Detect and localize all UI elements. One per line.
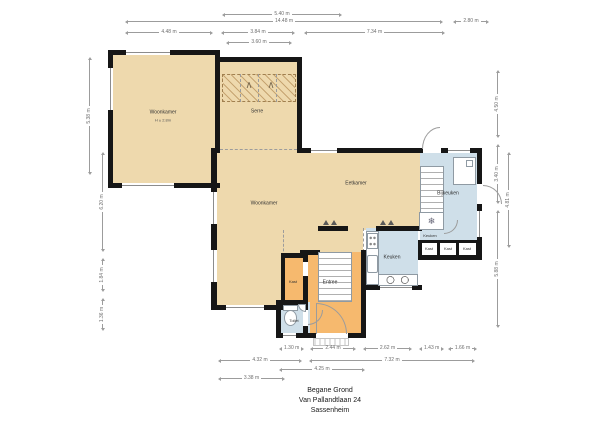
dim-bottom-4: 1.66 m: [446, 346, 479, 351]
label-serre: Serre: [251, 108, 263, 116]
plan-title-line1: Begane Grond: [230, 386, 430, 396]
label-kast-b: Kast: [444, 246, 452, 252]
wall: [318, 226, 348, 231]
label-toilet: Toilet: [289, 318, 298, 324]
wall: [437, 240, 440, 256]
dim-bottom-5: 4.32 m: [216, 358, 304, 363]
door-swing-mark: ∧: [267, 81, 274, 91]
dim-bottom-1: 2.44 m: [308, 346, 358, 351]
dim-top-5: 7.34 m: [302, 30, 447, 35]
dim-bottom-2: 2.62 m: [361, 346, 414, 351]
window: [311, 148, 337, 153]
plan-title: Begane Grond Van Pallandtlaan 24 Sassenh…: [230, 386, 430, 416]
dashed-opening-kitchen: [363, 228, 364, 252]
wall: [418, 240, 422, 256]
staircase-entree: [318, 252, 352, 302]
serre-glass-roof-hatch: [222, 74, 296, 102]
step-mark: [331, 220, 337, 225]
dim-bottom-6: 7.32 m: [307, 358, 477, 363]
dim-bottom-8: 3.38 m: [216, 376, 287, 381]
label-keuken-small: Keuken: [423, 233, 437, 239]
wall: [303, 253, 308, 302]
label-kast-a: Kast: [425, 246, 433, 252]
wall: [211, 148, 217, 310]
label-kast: Kast: [289, 279, 297, 285]
serre-hatch-divider: [258, 74, 259, 102]
step-mark: [380, 220, 386, 225]
label-woonkamer-tl: Woonkamer H ± 2.8m: [150, 109, 177, 123]
dim-right-1: 3.40 m: [495, 142, 500, 206]
dim-right-0: 4.50 m: [495, 68, 500, 140]
back-door-arc: [422, 127, 440, 149]
door-gap-side: [477, 184, 482, 204]
window: [122, 183, 174, 188]
wall: [456, 240, 459, 256]
step-mark: [323, 220, 329, 225]
dim-bottom-7: 4.25 m: [277, 367, 367, 372]
room-fill-mid-strip: [283, 230, 363, 254]
freezer-icon: ❄: [419, 212, 444, 230]
wall: [376, 226, 422, 231]
label-keuken: Keuken: [384, 254, 401, 262]
dim-top-2: 2.80 m: [451, 19, 491, 24]
serre-hatch-divider: [276, 74, 277, 102]
wall: [297, 57, 302, 153]
room-fill-main: [215, 150, 422, 230]
dim-left-1: 6.20 m: [100, 150, 105, 254]
dim-top-3: 4.48 m: [123, 30, 215, 35]
wall: [281, 253, 285, 302]
stove-icon: [367, 233, 378, 249]
dim-top-0: 5.40 m: [220, 12, 344, 17]
serre-hatch-divider: [240, 74, 241, 102]
label-bijkeuken: Bijkeuken: [437, 190, 459, 198]
step-mark: [388, 220, 394, 225]
wall: [418, 255, 482, 260]
dim-left-2: 1.84 m: [100, 256, 105, 294]
label-eetkamer: Eetkamer: [345, 180, 366, 188]
dim-top-1: 14.48 m: [123, 19, 445, 24]
label-entree: Entree: [323, 279, 338, 287]
label-woonkamer: Woonkamer: [251, 200, 278, 208]
label-woonkamer-tl-sub: H ± 2.8m: [150, 117, 177, 123]
boiler-icon: [466, 160, 473, 167]
dim-left-3: 1.36 m: [100, 296, 105, 333]
dim-left-0: 5.38 m: [87, 55, 92, 177]
dim-right-3: 4.81 m: [506, 150, 511, 250]
floorplan-canvas: ∧ ∧ ❄: [0, 0, 600, 424]
wall: [215, 57, 302, 62]
kitchen-counter-bottom: [378, 274, 418, 286]
wall: [476, 240, 482, 256]
window: [283, 333, 296, 338]
plan-title-line2: Van Pallandtlaan 24: [230, 396, 430, 406]
dim-right-2: 5.88 m: [495, 208, 500, 330]
dashed-ceiling-line: [220, 149, 297, 150]
dim-top-4: 3.84 m: [219, 30, 297, 35]
door-gap-kast: [303, 262, 308, 276]
dim-bottom-3: 1.43 m: [417, 346, 443, 351]
dim-bottom-0: 1.30 m: [277, 346, 305, 351]
window: [448, 148, 470, 153]
window: [226, 305, 264, 310]
window: [211, 250, 217, 282]
wall: [215, 50, 220, 153]
kitchen-sink: [367, 255, 378, 273]
dim-top-6: 3.60 m: [224, 40, 294, 45]
window: [108, 68, 113, 110]
label-kast-c: Kast: [463, 246, 471, 252]
window: [477, 211, 482, 237]
plan-title-line3: Sassenheim: [230, 406, 430, 416]
door-swing-mark: ∧: [245, 81, 252, 91]
room-fill-main-leg: [215, 230, 283, 308]
label-woonkamer-tl-text: Woonkamer: [150, 109, 177, 115]
window: [211, 192, 217, 224]
window: [126, 50, 170, 55]
wall: [418, 240, 480, 243]
